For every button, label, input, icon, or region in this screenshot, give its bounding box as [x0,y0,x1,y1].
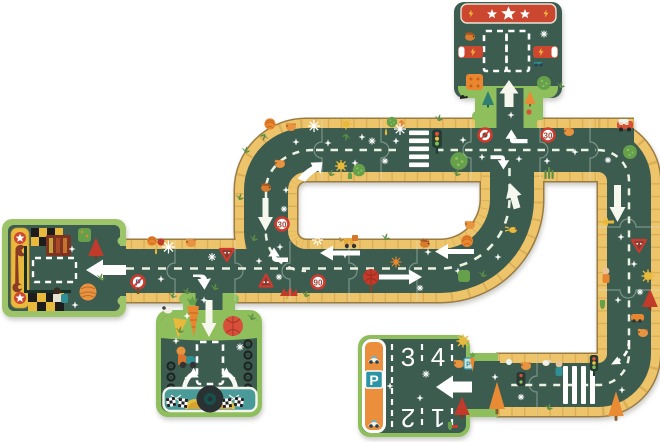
svg-text:P: P [369,372,378,388]
svg-text:3: 3 [401,342,415,372]
svg-text:30: 30 [544,132,553,141]
svg-text:2: 2 [401,403,415,433]
svg-text:4: 4 [431,342,445,372]
svg-text:90: 90 [314,279,323,288]
svg-text:30: 30 [278,221,287,230]
svg-text:P: P [466,362,471,369]
svg-text:1: 1 [431,403,445,433]
